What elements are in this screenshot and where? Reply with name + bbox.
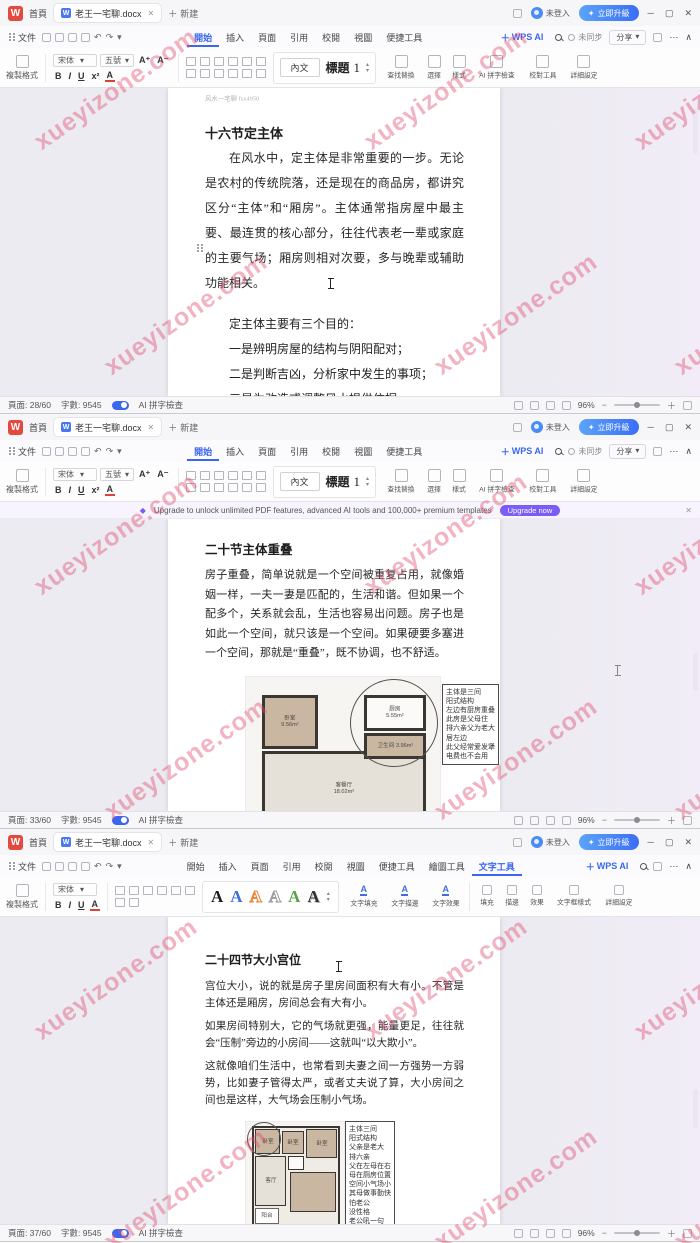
title-bar: W 首頁 W 老王一宅聊.docx ✕ ＋ 新建 未登入 ✦ 立即升級 ─ ▢ … (0, 0, 700, 26)
print-icon[interactable] (68, 862, 77, 871)
annotation-line: 电费也不会用 (446, 752, 495, 761)
ribbon-tool-button[interactable]: AI 拼字檢查 (476, 469, 518, 495)
fullscreen-icon[interactable] (683, 401, 692, 410)
wordart-style-2[interactable]: A (230, 888, 242, 905)
tab-close-icon[interactable]: ✕ (148, 423, 155, 432)
paragraph-tools (186, 471, 266, 492)
mouse-cursor (617, 665, 618, 676)
doc-paragraph: 一是辨明房屋的结构与阴阳配对； (205, 337, 464, 362)
share-button[interactable]: 分享 ▾ (609, 30, 646, 45)
text-tool-button[interactable]: A 文字描邊 (389, 885, 421, 909)
document-tab[interactable]: W 老王一宅聊.docx ✕ (53, 417, 162, 437)
floorplan-image[interactable]: 卧室9.56m² 客餐厅18.02m² 厨房5.55m² 卫生间 3.96m² … (245, 676, 441, 812)
annotation-textbox[interactable]: 主体三间阳式结构父亲是老大排六亲父在左母在右母在厕房位置空间小气场小其母做事勤快… (345, 1121, 395, 1224)
zoom-slider[interactable] (614, 404, 660, 406)
ribbon-tab[interactable]: 校閱 (315, 28, 347, 47)
user-account[interactable]: 未登入 (531, 421, 570, 433)
ribbon-tab[interactable]: 頁面 (251, 28, 283, 47)
doc-heading: 二十四节大小宫位 (205, 951, 464, 968)
undo-icon[interactable]: ↶ (94, 32, 102, 43)
minimize-icon[interactable]: ─ (648, 8, 654, 19)
share-button[interactable]: 分享 ▾ (609, 444, 646, 459)
print-icon[interactable] (68, 33, 77, 42)
bold-button[interactable]: B (53, 71, 64, 81)
ribbon-tab[interactable]: 頁面 (244, 857, 276, 876)
hamburger-icon (8, 861, 15, 871)
tab-close-icon[interactable]: ✕ (148, 838, 155, 847)
font-name-select[interactable]: 宋体 ▾ (53, 468, 97, 481)
font-name-select[interactable]: 宋体 ▾ (53, 54, 97, 67)
collapse-ribbon-icon[interactable]: ∧ (685, 446, 692, 457)
read-mode-icon[interactable] (514, 401, 523, 410)
text-cursor (338, 961, 339, 972)
ribbon-tab[interactable]: 便捷工具 (379, 28, 429, 47)
underline-button[interactable]: U (76, 900, 87, 910)
vertical-scrollbar[interactable] (692, 90, 699, 394)
ribbon-tool-button[interactable]: 選擇 (426, 469, 442, 495)
doc-tab-icon: W (61, 837, 71, 847)
save-icon[interactable] (55, 33, 64, 42)
text-tool-icon: A (401, 885, 408, 896)
shape-tool-button[interactable]: 填充 (479, 885, 495, 908)
title-bar: W 首頁 W 老王一宅聊.docx ✕ ＋ 新建 未登入 ✦ 立即升級 ─ ▢ … (0, 414, 700, 440)
ribbon-tabs: 開始插入頁面引用校閱視圖便捷工具 (187, 28, 429, 47)
floorplan-figure[interactable]: 卧室9.56m² 客餐厅18.02m² 厨房5.55m² 卫生间 3.96m² … (205, 676, 464, 812)
plus-icon: ＋ (168, 836, 177, 849)
close-icon[interactable]: ✕ (684, 422, 692, 433)
upgrade-button[interactable]: ✦ 立即升級 (579, 5, 639, 21)
chevron-down-icon[interactable]: ▾ (117, 861, 122, 872)
shape-tool-button[interactable]: 詳細設定 (603, 885, 635, 908)
ribbon-tab[interactable]: 插入 (212, 857, 244, 876)
line-spacing-icon[interactable] (242, 471, 252, 480)
document-area[interactable]: 风水一宅聊 fsx4950 十六节定主体 在风水中，定主体是非常重要的一步。无论… (0, 88, 700, 396)
doc-tab-title: 老王一宅聊.docx (75, 421, 142, 434)
font-name-select[interactable]: 宋体 ▾ (53, 883, 97, 896)
avatar (531, 7, 543, 19)
upgrade-button[interactable]: ✦ 立即升級 (579, 419, 639, 435)
sync-icon (568, 448, 575, 455)
outline-icon[interactable] (562, 816, 571, 825)
decrease-font-button[interactable]: A⁻ (155, 469, 170, 480)
user-account[interactable]: 未登入 (531, 836, 570, 848)
file-menu[interactable]: 文件 (8, 860, 36, 873)
justify-icon[interactable] (228, 483, 238, 492)
text-tools-group: A 文字填充 A 文字描邊 A 文字效果 (348, 885, 462, 909)
preview-icon[interactable] (81, 33, 90, 42)
superscript-button[interactable]: x² (90, 485, 102, 495)
zoom-in-icon[interactable]: ＋ (667, 814, 676, 827)
outdent-icon[interactable] (143, 886, 153, 895)
align-left-icon[interactable] (186, 483, 196, 492)
zoom-in-icon[interactable]: ＋ (667, 399, 676, 412)
web-layout-icon[interactable] (546, 401, 555, 410)
new-doc-icon[interactable] (42, 447, 51, 456)
document-page[interactable]: 二十节主体重叠 房子重叠，简单说就是一个空间被重复占用，就像婚姻一样，一夫一妻是… (168, 519, 500, 811)
format-painter-icon (16, 884, 29, 897)
number-list-icon[interactable] (200, 471, 210, 480)
print-icon[interactable] (68, 447, 77, 456)
paragraph-tools (186, 57, 266, 78)
ribbon-tool-button[interactable]: 詳細設定 (568, 55, 600, 81)
document-area[interactable]: 二十节主体重叠 房子重叠，简单说就是一个空间被重复占用，就像婚姻一样，一夫一妻是… (0, 519, 700, 811)
layout-icon[interactable] (513, 838, 522, 847)
bold-button[interactable]: B (53, 900, 64, 910)
ribbon-tab[interactable]: 便捷工具 (379, 442, 429, 461)
tool-icon (395, 469, 408, 482)
tab-wps-ai[interactable]: ＋ WPS AI (495, 31, 550, 44)
font-size-select[interactable]: 五號 ▾ (100, 54, 134, 67)
wps-window-2: W 首頁 W 老王一宅聊.docx ✕ ＋ 新建 未登入 ✦ 立即升級 ─ ▢ … (0, 414, 700, 829)
ribbon-toolbar: 複製格式 宋体 ▾ 五號 ▾ A⁺ A⁻ B I U x² A (0, 462, 700, 502)
ribbon-tool-button[interactable]: 樣式 (451, 55, 467, 81)
align-right-icon[interactable] (115, 898, 125, 907)
redo-icon[interactable]: ↷ (106, 32, 114, 43)
annotation-line: 此父经常爱发犟 (446, 743, 495, 752)
zoom-out-icon[interactable]: − (602, 815, 607, 825)
file-menu[interactable]: 文件 (8, 445, 36, 458)
web-layout-icon[interactable] (546, 816, 555, 825)
room-label: 卧室 (316, 1140, 327, 1146)
doc-paragraph: 这就像咱们生活中，也常看到夫妻之间一方强势一方弱势，比如妻子管得太严，或者丈夫说… (205, 1058, 464, 1109)
maximize-icon[interactable]: ▢ (665, 422, 674, 433)
print-layout-icon[interactable] (530, 816, 539, 825)
search-icon[interactable] (555, 448, 562, 455)
bullet-list-icon[interactable] (186, 471, 196, 480)
minimize-icon[interactable]: ─ (648, 837, 654, 848)
print-layout-icon[interactable] (530, 401, 539, 410)
plus-icon: ＋ (501, 445, 510, 458)
read-mode-icon[interactable] (514, 816, 523, 825)
outline-icon[interactable] (562, 1229, 571, 1238)
style-heading-1[interactable]: 標題 1 (326, 59, 361, 76)
vertical-scrollbar[interactable] (692, 919, 699, 1222)
tab-wps-ai[interactable]: ＋ WPS AI (580, 860, 635, 873)
ribbon-tab[interactable]: 開始 (187, 28, 219, 47)
ribbon-tab[interactable]: 繪圖工具 (422, 857, 472, 876)
ribbon-tab[interactable]: 開始 (180, 857, 212, 876)
ribbon-tab[interactable]: 插入 (219, 442, 251, 461)
save-icon[interactable] (55, 447, 64, 456)
chevron-down-icon: ▾ (80, 885, 84, 894)
zoom-out-icon[interactable]: − (602, 400, 607, 410)
home-tab[interactable]: 首頁 (29, 421, 47, 434)
increase-font-button[interactable]: A⁺ (137, 55, 152, 66)
ribbon-tab[interactable]: 頁面 (251, 442, 283, 461)
upgrade-button[interactable]: ✦ 立即升級 (579, 834, 639, 850)
ribbon-tool-button[interactable]: 樣式 (451, 469, 467, 495)
italic-button[interactable]: I (67, 900, 74, 910)
outdent-icon[interactable] (214, 57, 224, 66)
ribbon-tool-button[interactable]: 查找替換 (385, 469, 417, 495)
indent-icon[interactable] (157, 886, 167, 895)
italic-button[interactable]: I (67, 485, 74, 495)
collapse-ribbon-icon[interactable]: ∧ (685, 32, 692, 43)
ribbon-tab[interactable]: 引用 (283, 28, 315, 47)
upgrade-now-button[interactable]: Upgrade now (500, 505, 561, 516)
ribbon-tab[interactable]: 校閱 (308, 857, 340, 876)
align-left-icon[interactable] (171, 886, 181, 895)
annotation-textbox[interactable]: 主体是三间阳式结构左边有厨房重叠此房是父母住排六亲父为老大居左边此父经常爱发犟电… (442, 684, 499, 766)
avatar (531, 836, 543, 848)
user-account[interactable]: 未登入 (531, 7, 570, 19)
spark-icon: ✦ (588, 9, 595, 18)
shape-tool-button[interactable]: 文字框樣式 (554, 885, 594, 908)
room-label: 阳台 (261, 1213, 272, 1219)
zoom-slider[interactable] (614, 1232, 660, 1234)
print-layout-icon[interactable] (530, 1229, 539, 1238)
sort-icon[interactable] (256, 57, 266, 66)
home-tab[interactable]: 首頁 (29, 7, 47, 20)
number-list-icon[interactable] (129, 886, 139, 895)
text-tool-button[interactable]: A 文字效果 (430, 885, 462, 909)
wps-logo[interactable]: W (8, 835, 23, 850)
ribbon-tab[interactable]: 引用 (283, 442, 315, 461)
close-icon[interactable]: ✕ (684, 837, 692, 848)
chevron-down-icon[interactable]: ▾ (117, 32, 122, 43)
ribbon-tab[interactable]: 引用 (276, 857, 308, 876)
layout-icon[interactable] (513, 9, 522, 18)
tool-icon (577, 469, 590, 482)
superscript-button[interactable]: x² (90, 71, 102, 81)
font-color-button[interactable]: A (105, 70, 116, 82)
document-page[interactable]: 风水一宅聊 fsx4950 十六节定主体 在风水中，定主体是非常重要的一步。无论… (168, 88, 500, 396)
justify-icon[interactable] (129, 898, 139, 907)
shape-tools-group: 填充 描邊 效果 文字框樣式 詳 (479, 885, 635, 908)
maximize-icon[interactable]: ▢ (665, 837, 674, 848)
gallery-down-icon[interactable]: ▾ (366, 68, 369, 74)
redo-icon[interactable]: ↷ (106, 446, 114, 457)
file-menu[interactable]: 文件 (8, 31, 36, 44)
word-count: 字數: 9545 (61, 814, 102, 826)
justify-icon[interactable] (228, 69, 238, 78)
menu-bar: 文件 ↶ ↷ ▾ 開始插入頁面引用校閱視圖便捷工具 ＋ WPS AI 未同步 (0, 26, 700, 48)
zoom-level[interactable]: 96% (578, 400, 595, 410)
font-size-select[interactable]: 五號 ▾ (100, 468, 134, 481)
ribbon-tool-button[interactable]: 校對工具 (527, 55, 559, 81)
tool-icon (536, 55, 549, 68)
spellcheck-toggle[interactable] (112, 401, 129, 410)
vertical-scrollbar[interactable] (692, 521, 699, 809)
document-tab[interactable]: W 老王一宅聊.docx ✕ (53, 832, 162, 852)
wordart-gallery: A A A A A A ▴ ▾ (202, 881, 339, 913)
align-right-icon[interactable] (214, 483, 224, 492)
undo-icon[interactable]: ↶ (94, 861, 102, 872)
wordart-style-4[interactable]: A (269, 888, 281, 905)
ribbon-tool-button[interactable]: AI 拼字檢查 (476, 55, 518, 81)
border-icon[interactable] (256, 69, 266, 78)
shape-tool-button[interactable]: 描邊 (504, 885, 520, 908)
bullet-list-icon[interactable] (115, 886, 125, 895)
indent-icon[interactable] (228, 57, 238, 66)
hamburger-icon (8, 446, 15, 456)
undo-icon[interactable]: ↶ (94, 446, 102, 457)
new-doc-icon[interactable] (42, 862, 51, 871)
doc-paragraph: 在风水中，定主体是非常重要的一步。无论是农村的传统院落，还是现在的商品房，都讲究… (205, 146, 464, 296)
wordart-style-5[interactable]: A (288, 888, 300, 905)
outdent-icon[interactable] (214, 471, 224, 480)
wps-logo[interactable]: W (8, 420, 23, 435)
redo-icon[interactable]: ↷ (106, 861, 114, 872)
chevron-down-icon[interactable]: ▾ (117, 446, 122, 457)
ribbon-tool-button[interactable]: 查找替換 (385, 55, 417, 81)
new-tab-button[interactable]: ＋ 新建 (168, 836, 198, 849)
tab-close-icon[interactable]: ✕ (148, 9, 155, 18)
home-tab[interactable]: 首頁 (29, 836, 47, 849)
spellcheck-label: AI 拼字檢查 (139, 814, 183, 826)
maximize-icon[interactable]: ▢ (665, 8, 674, 19)
preview-icon[interactable] (81, 862, 90, 871)
shading-icon[interactable] (242, 483, 252, 492)
fullscreen-icon[interactable] (683, 816, 692, 825)
format-painter-button[interactable]: 複製格式 (6, 469, 38, 495)
plus-icon: ＋ (168, 421, 177, 434)
window-split-icon[interactable] (653, 33, 662, 42)
document-page[interactable]: 二十四节大小宫位 宫位大小，说的就是房子里房间面积有大有小。不管是主体还是厢房，… (168, 917, 500, 1224)
preview-icon[interactable] (81, 447, 90, 456)
minimize-icon[interactable]: ─ (648, 422, 654, 433)
layout-icon[interactable] (513, 423, 522, 432)
document-tab[interactable]: W 老王一宅聊.docx ✕ (53, 3, 162, 23)
doc-heading: 二十节主体重叠 (205, 539, 464, 558)
window-split-icon[interactable] (653, 862, 662, 871)
align-center-icon[interactable] (185, 886, 195, 895)
sync-status[interactable]: 未同步 (568, 32, 602, 43)
italic-button[interactable]: I (67, 71, 74, 81)
doc-heading: 十六节定主体 (205, 123, 464, 142)
doc-paragraph: 宫位大小，说的就是房子里房间面积有大有小。不管是主体还是厢房，房间总会有大有小。 (205, 978, 464, 1012)
ribbon-tab[interactable]: 插入 (219, 28, 251, 47)
bold-button[interactable]: B (53, 485, 64, 495)
new-doc-icon[interactable] (42, 33, 51, 42)
style-heading-1[interactable]: 標題 1 (326, 473, 361, 490)
align-center-icon[interactable] (200, 483, 210, 492)
tab-wps-ai[interactable]: ＋ WPS AI (495, 445, 550, 458)
align-left-icon[interactable] (186, 69, 196, 78)
gallery-down-icon[interactable]: ▾ (366, 482, 369, 488)
shape-tool-button[interactable]: 效果 (529, 885, 545, 908)
doc-tab-icon: W (61, 8, 71, 18)
ribbon-tab[interactable]: 視圖 (347, 442, 379, 461)
doc-tab-icon: W (61, 422, 71, 432)
page-indicator: 頁面: 33/60 (8, 814, 51, 826)
wordart-style-3[interactable]: A (250, 888, 262, 905)
ribbon-tabs: 開始插入頁面引用校閱視圖便捷工具 (187, 442, 429, 461)
ribbon-tab[interactable]: 開始 (187, 442, 219, 461)
style-body-text[interactable]: 內文 (280, 472, 320, 491)
border-icon[interactable] (256, 483, 266, 492)
spark-icon: ✦ (588, 838, 595, 847)
format-painter-button[interactable]: 複製格式 (6, 884, 38, 910)
gallery-down-icon[interactable]: ▾ (327, 897, 330, 903)
ribbon-tab[interactable]: 視圖 (340, 857, 372, 876)
wps-window-1: W 首頁 W 老王一宅聊.docx ✕ ＋ 新建 未登入 ✦ 立即升級 ─ ▢ … (0, 0, 700, 414)
new-tab-button[interactable]: ＋ 新建 (168, 7, 198, 20)
more-icon[interactable]: ⋯ (669, 32, 678, 43)
indent-icon[interactable] (228, 471, 238, 480)
increase-font-button[interactable]: A⁺ (137, 469, 152, 480)
ribbon-right-tools: 查找替換 選擇 樣式 AI 拼字檢查 (385, 55, 600, 81)
align-center-icon[interactable] (200, 69, 210, 78)
zoom-out-icon[interactable]: − (602, 1228, 607, 1238)
window-split-icon[interactable] (653, 447, 662, 456)
align-right-icon[interactable] (214, 69, 224, 78)
decrease-font-button[interactable]: A⁻ (155, 55, 170, 66)
format-painter-icon (16, 469, 29, 482)
collapse-ribbon-icon[interactable]: ∧ (685, 861, 692, 872)
close-icon[interactable]: ✕ (684, 8, 692, 19)
floorplan-image[interactable]: 卧室 卧室 卧室 客厅 阳台 (245, 1121, 345, 1224)
bullet-list-icon[interactable] (186, 57, 196, 66)
wps-logo[interactable]: W (8, 6, 23, 21)
read-mode-icon[interactable] (514, 1229, 523, 1238)
line-spacing-icon[interactable] (242, 57, 252, 66)
web-layout-icon[interactable] (546, 1229, 555, 1238)
more-icon[interactable]: ⋯ (669, 446, 678, 457)
doc-paragraph: 如果房间特别大，它的气场就更强，能量更足，往往就会“压制”旁边的小房间——这就叫… (205, 1018, 464, 1052)
tool-icon (490, 469, 503, 482)
ribbon-tool-button[interactable]: 校對工具 (527, 469, 559, 495)
style-body-text[interactable]: 內文 (280, 58, 320, 77)
page-indicator: 頁面: 28/60 (8, 399, 51, 411)
tool-icon (453, 55, 466, 68)
floorplan-figure[interactable]: 卧室 卧室 卧室 客厅 阳台 (205, 1121, 464, 1224)
ribbon-tab[interactable]: 校閱 (315, 442, 347, 461)
spellcheck-toggle[interactable] (112, 816, 129, 825)
save-icon[interactable] (55, 862, 64, 871)
underline-button[interactable]: U (76, 485, 87, 495)
sync-status[interactable]: 未同步 (568, 446, 602, 457)
ribbon-tab[interactable]: 視圖 (347, 28, 379, 47)
ribbon-tool-button[interactable]: 詳細設定 (568, 469, 600, 495)
ribbon-tab[interactable]: 文字工具 (472, 857, 522, 876)
shape-tool-icon (532, 885, 542, 895)
paragraph-tools (115, 886, 195, 907)
format-painter-button[interactable]: 複製格式 (6, 55, 38, 81)
document-area[interactable]: 二十四节大小宫位 宫位大小，说的就是房子里房间面积有大有小。不管是主体还是厢房，… (0, 917, 700, 1224)
more-icon[interactable]: ⋯ (669, 861, 678, 872)
zoom-slider[interactable] (614, 819, 660, 821)
shading-icon[interactable] (242, 69, 252, 78)
paragraph-drag-handle[interactable] (196, 243, 203, 253)
ribbon-tool-button[interactable]: 選擇 (426, 55, 442, 81)
spellcheck-toggle[interactable] (112, 1229, 129, 1238)
font-color-button[interactable]: A (90, 899, 101, 911)
zoom-in-icon[interactable]: ＋ (667, 1227, 676, 1240)
outline-icon[interactable] (562, 401, 571, 410)
text-tool-button[interactable]: A 文字填充 (348, 885, 380, 909)
ribbon-tab[interactable]: 便捷工具 (372, 857, 422, 876)
font-color-button[interactable]: A (105, 484, 116, 496)
wordart-style-1[interactable]: A (211, 888, 223, 905)
sort-icon[interactable] (256, 471, 266, 480)
wordart-style-6[interactable]: A (307, 888, 319, 905)
new-tab-button[interactable]: ＋ 新建 (168, 421, 198, 434)
search-icon[interactable] (640, 863, 647, 870)
ribbon-right-tools: 查找替換 選擇 樣式 AI 拼字檢查 (385, 469, 600, 495)
spellcheck-label: AI 拼字檢查 (139, 1227, 183, 1239)
search-icon[interactable] (555, 34, 562, 41)
underline-button[interactable]: U (76, 71, 87, 81)
zoom-level[interactable]: 96% (578, 1228, 595, 1238)
zoom-level[interactable]: 96% (578, 815, 595, 825)
text-tool-icon: A (442, 885, 449, 896)
banner-close-icon[interactable]: ✕ (685, 506, 692, 515)
fullscreen-icon[interactable] (683, 1229, 692, 1238)
tool-icon (428, 55, 441, 68)
menu-bar: 文件 ↶ ↷ ▾ 開始插入頁面引用校閱視圖便捷工具繪圖工具文字工具 ＋ WPS … (0, 855, 700, 877)
number-list-icon[interactable] (200, 57, 210, 66)
